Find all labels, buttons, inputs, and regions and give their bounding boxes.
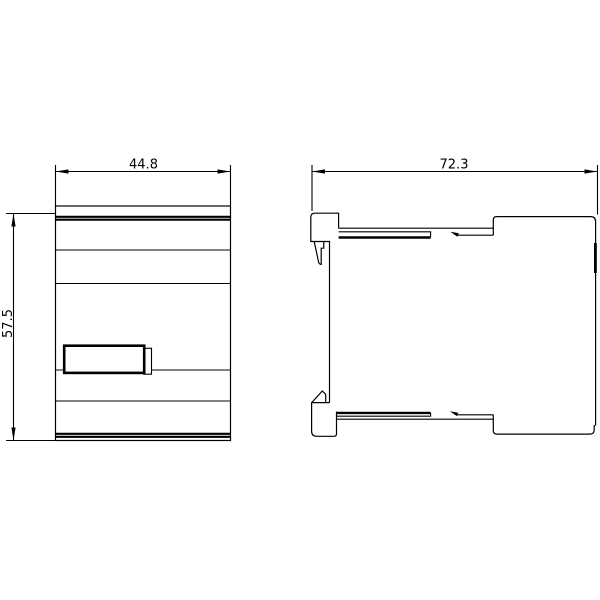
- dimension-drawing-canvas: 44.8 57.5: [0, 0, 600, 600]
- dimension-front-height: 57.5: [1, 214, 56, 441]
- dimension-label-height: 57.5: [1, 309, 16, 338]
- leader-arrow-bottom: [450, 411, 459, 416]
- side-front-block-outline: [497, 217, 596, 435]
- front-block-step-top: [493, 217, 496, 236]
- arrowhead-right: [585, 169, 598, 173]
- arrowhead-left: [56, 169, 69, 173]
- nameplate: [64, 346, 144, 373]
- front-view-outline: [56, 206, 231, 441]
- din-clip-top-block: [311, 213, 339, 402]
- side-view: [311, 213, 596, 436]
- arrowhead-left: [312, 169, 325, 173]
- dimension-label-width: 44.8: [129, 158, 158, 173]
- din-latch-hook: [312, 391, 326, 402]
- dimension-label-depth: 72.3: [440, 158, 469, 173]
- din-latch-bottom-block: [312, 403, 337, 437]
- arrowhead-bottom: [11, 428, 15, 441]
- arrowhead-top: [11, 214, 15, 227]
- front-block-step-bottom: [493, 415, 496, 434]
- din-clip-prong: [314, 242, 324, 265]
- dimension-front-width: 44.8: [56, 158, 231, 207]
- leader-arrow-top: [450, 232, 459, 237]
- technical-drawing: 44.8 57.5: [0, 0, 600, 600]
- front-view: [56, 206, 231, 441]
- dimension-side-depth: 72.3: [312, 158, 598, 215]
- arrowhead-right: [218, 169, 231, 173]
